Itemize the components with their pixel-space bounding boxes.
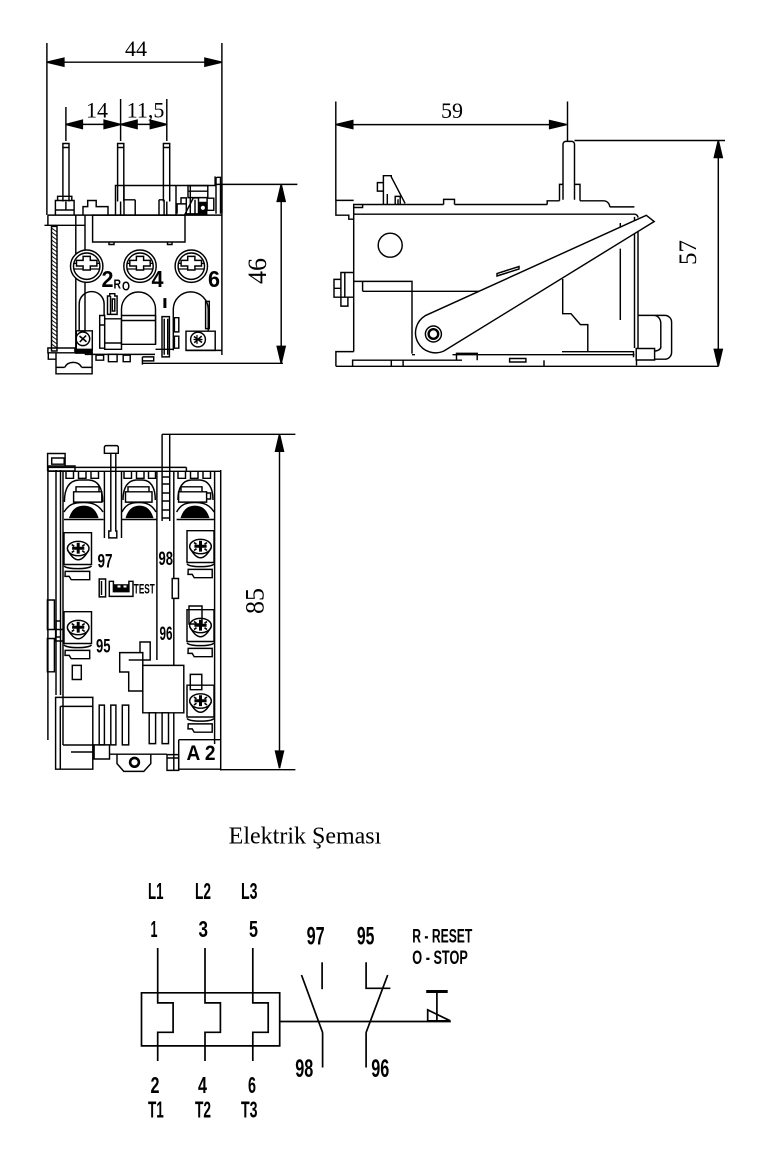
svg-text:11,5: 11,5 [127,98,165,123]
svg-text:L2: L2 [195,878,211,904]
svg-text:T1: T1 [148,1097,164,1123]
svg-text:T3: T3 [241,1097,258,1123]
svg-text:Elektrik Şeması: Elektrik Şeması [229,824,382,850]
svg-text:1: 1 [151,916,158,942]
svg-text:2: 2 [102,266,114,292]
svg-text:59: 59 [441,98,463,123]
svg-text:44: 44 [125,36,147,61]
svg-text:57: 57 [675,240,702,265]
svg-text:L1: L1 [148,878,164,904]
svg-text:46: 46 [243,258,272,284]
svg-text:A 2: A 2 [187,742,216,765]
svg-text:O - STOP: O - STOP [412,948,468,969]
svg-text:98: 98 [159,549,174,570]
svg-text:6: 6 [248,1072,256,1098]
svg-text:TEST: TEST [134,582,155,597]
svg-text:97: 97 [307,922,325,950]
svg-text:96: 96 [160,624,173,645]
svg-text:14: 14 [86,98,108,123]
svg-text:96: 96 [371,1055,389,1083]
svg-text:4: 4 [198,1072,207,1098]
svg-text:85: 85 [241,588,270,614]
svg-text:95: 95 [357,922,375,950]
svg-text:O: O [122,279,130,294]
svg-text:95: 95 [96,637,111,658]
svg-text:6: 6 [208,266,220,292]
svg-text:T2: T2 [195,1097,211,1123]
svg-text:L3: L3 [241,878,258,904]
svg-text:2: 2 [151,1072,160,1098]
svg-text:3: 3 [199,916,209,942]
svg-text:97: 97 [98,552,113,573]
svg-text:5: 5 [249,916,258,942]
svg-text:4: 4 [152,266,164,292]
svg-text:98: 98 [295,1055,313,1083]
svg-text:R: R [114,277,122,292]
svg-text:R - RESET: R - RESET [412,926,472,947]
